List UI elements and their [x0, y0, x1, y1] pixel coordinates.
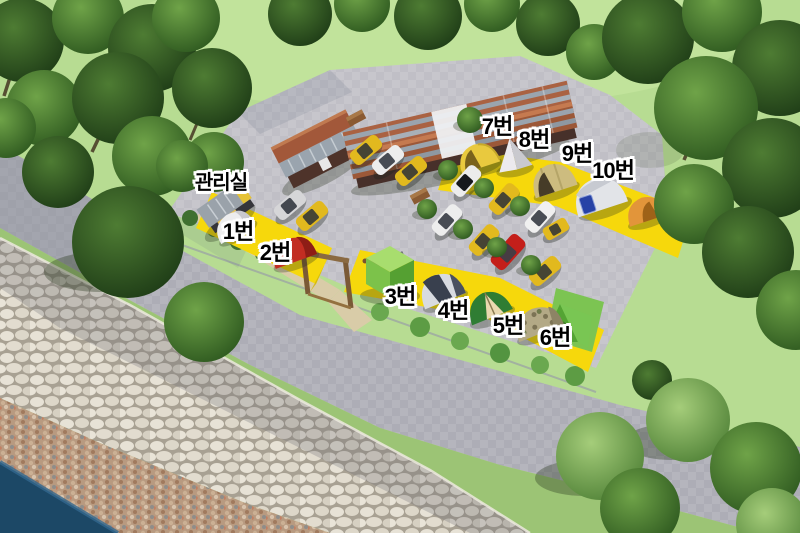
site-labels: 관리실 1번 2번 3번 4번 5번 6번 7번 8번 9번 10번 — [0, 0, 800, 533]
label-site-4: 4번 — [438, 300, 468, 322]
label-site-7: 7번 — [482, 116, 512, 138]
label-site-10: 10번 — [592, 160, 634, 182]
label-office: 관리실 — [195, 173, 247, 193]
campground-site-map: 관리실 1번 2번 3번 4번 5번 6번 7번 8번 9번 10번 — [0, 0, 800, 533]
label-site-3: 3번 — [385, 286, 415, 308]
label-site-9: 9번 — [562, 143, 592, 165]
label-site-8: 8번 — [519, 129, 549, 151]
label-site-1: 1번 — [223, 221, 253, 243]
label-site-5: 5번 — [493, 315, 523, 337]
label-site-2: 2번 — [260, 242, 290, 264]
label-site-6: 6번 — [540, 327, 570, 349]
